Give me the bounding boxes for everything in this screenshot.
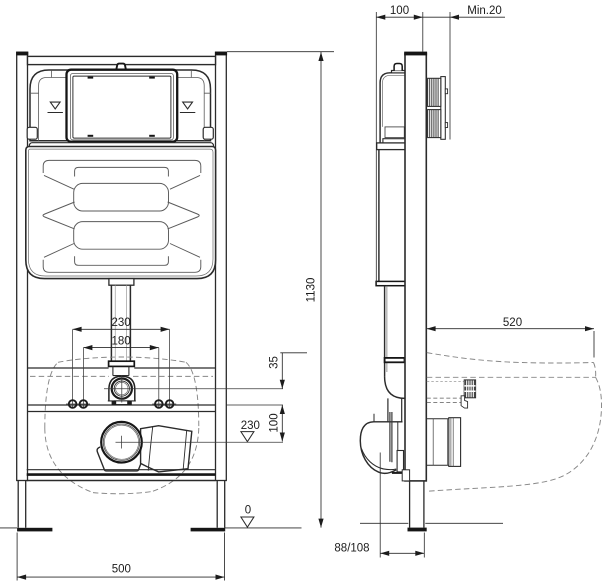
svg-text:100: 100 — [269, 413, 281, 432]
svg-text:0: 0 — [245, 505, 251, 517]
svg-text:230: 230 — [112, 317, 131, 329]
svg-text:88/108: 88/108 — [334, 543, 369, 555]
svg-text:Min.20: Min.20 — [467, 5, 502, 17]
svg-text:500: 500 — [112, 564, 131, 576]
svg-text:1130: 1130 — [306, 278, 318, 303]
svg-text:520: 520 — [503, 317, 522, 329]
svg-text:230: 230 — [241, 420, 260, 432]
svg-text:180: 180 — [112, 336, 131, 348]
svg-text:35: 35 — [269, 356, 281, 369]
svg-text:100: 100 — [390, 5, 409, 17]
